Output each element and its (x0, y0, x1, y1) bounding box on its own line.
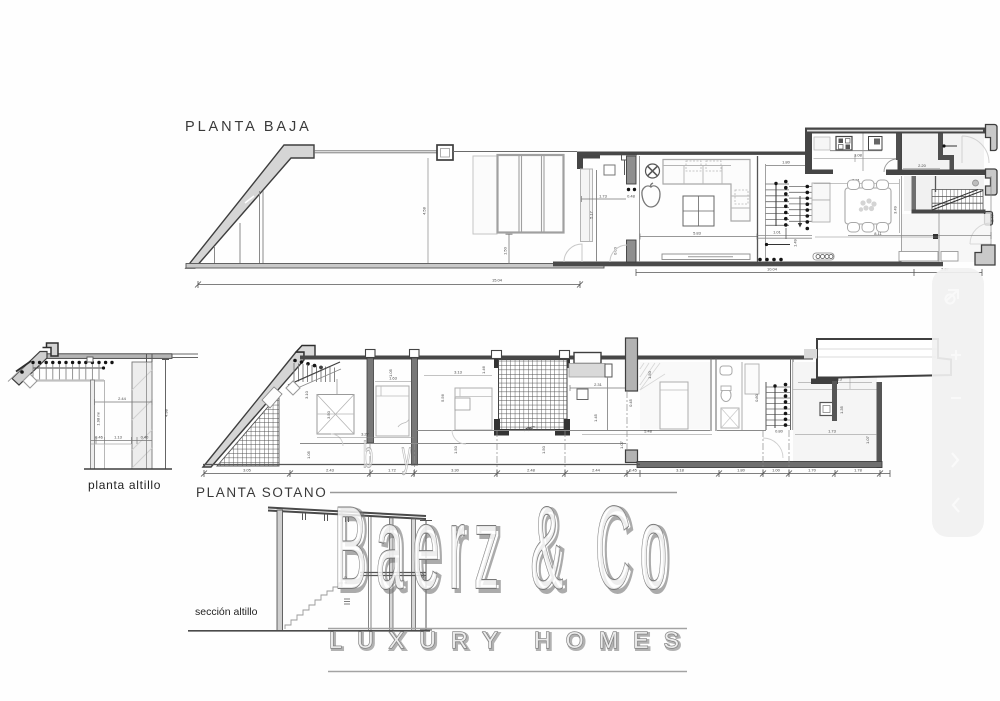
svg-text:0.80: 0.80 (754, 393, 759, 402)
svg-text:1.73: 1.73 (828, 429, 837, 434)
svg-text:2.44: 2.44 (592, 468, 601, 473)
svg-text:1.35: 1.35 (839, 405, 844, 414)
svg-text:3.13: 3.13 (454, 370, 463, 375)
svg-text:1.01: 1.01 (773, 230, 782, 235)
svg-text:1.50: 1.50 (503, 246, 508, 255)
svg-text:1.70: 1.70 (808, 468, 817, 473)
svg-text:1.80: 1.80 (737, 468, 746, 473)
svg-text:0.40: 0.40 (141, 435, 150, 440)
svg-text:1.78: 1.78 (854, 468, 863, 473)
svg-text:4.98: 4.98 (164, 408, 169, 417)
svg-text:1.45: 1.45 (593, 413, 598, 422)
svg-text:0.45: 0.45 (628, 398, 633, 407)
svg-text:1.50: 1.50 (541, 445, 546, 454)
svg-text:0.48: 0.48 (627, 194, 636, 199)
svg-text:1.05: 1.05 (306, 450, 311, 459)
svg-text:1.07: 1.07 (619, 440, 624, 449)
svg-text:planta altillo: planta altillo (88, 478, 161, 492)
svg-text:1.07: 1.07 (865, 435, 870, 444)
svg-text:1.00: 1.00 (772, 468, 781, 473)
svg-text:3.50: 3.50 (326, 410, 331, 419)
svg-text:3.10: 3.10 (304, 390, 309, 399)
svg-text:15.04: 15.04 (492, 278, 503, 283)
svg-text:1.50: 1.50 (647, 370, 652, 379)
svg-text:3.30: 3.30 (451, 468, 460, 473)
svg-text:2.48: 2.48 (527, 468, 536, 473)
svg-text:1.50: 1.50 (453, 445, 458, 454)
svg-text:3.49: 3.49 (893, 205, 898, 214)
svg-text:4.58: 4.58 (422, 206, 427, 215)
svg-text:0.80: 0.80 (775, 429, 784, 434)
svg-text:5.56: 5.56 (440, 393, 445, 402)
svg-text:1.72: 1.72 (388, 468, 397, 473)
svg-text:3.05: 3.05 (243, 468, 252, 473)
svg-text:3.18: 3.18 (676, 468, 685, 473)
svg-text:2.47: 2.47 (990, 213, 995, 222)
svg-text:PLANTA BAJA: PLANTA BAJA (185, 119, 312, 135)
svg-text:10.04: 10.04 (767, 267, 778, 272)
svg-text:0.45: 0.45 (629, 468, 638, 473)
svg-text:2.31: 2.31 (594, 382, 603, 387)
svg-text:2.20: 2.20 (918, 163, 927, 168)
svg-text:2.44: 2.44 (118, 396, 127, 401)
svg-text:3.08: 3.08 (854, 153, 863, 158)
svg-text:5.83: 5.83 (693, 231, 702, 236)
svg-text:2.43: 2.43 (326, 468, 335, 473)
svg-text:1.13: 1.13 (114, 435, 123, 440)
svg-text:5.48: 5.48 (644, 429, 653, 434)
svg-text:5.17: 5.17 (589, 210, 594, 219)
svg-text:1.73: 1.73 (599, 194, 608, 199)
svg-text:1.80: 1.80 (782, 160, 791, 165)
svg-text:0.46: 0.46 (95, 435, 104, 440)
svg-text:1.63: 1.63 (389, 376, 398, 381)
svg-text:8.11: 8.11 (874, 231, 882, 236)
svg-text:1.49: 1.49 (793, 238, 798, 247)
svg-text:PLANTA SOTANO: PLANTA SOTANO (196, 485, 327, 500)
svg-text:1.98 mi: 1.98 mi (96, 412, 101, 425)
svg-text:sección altillo: sección altillo (195, 606, 258, 618)
svg-text:1.46: 1.46 (481, 365, 486, 374)
